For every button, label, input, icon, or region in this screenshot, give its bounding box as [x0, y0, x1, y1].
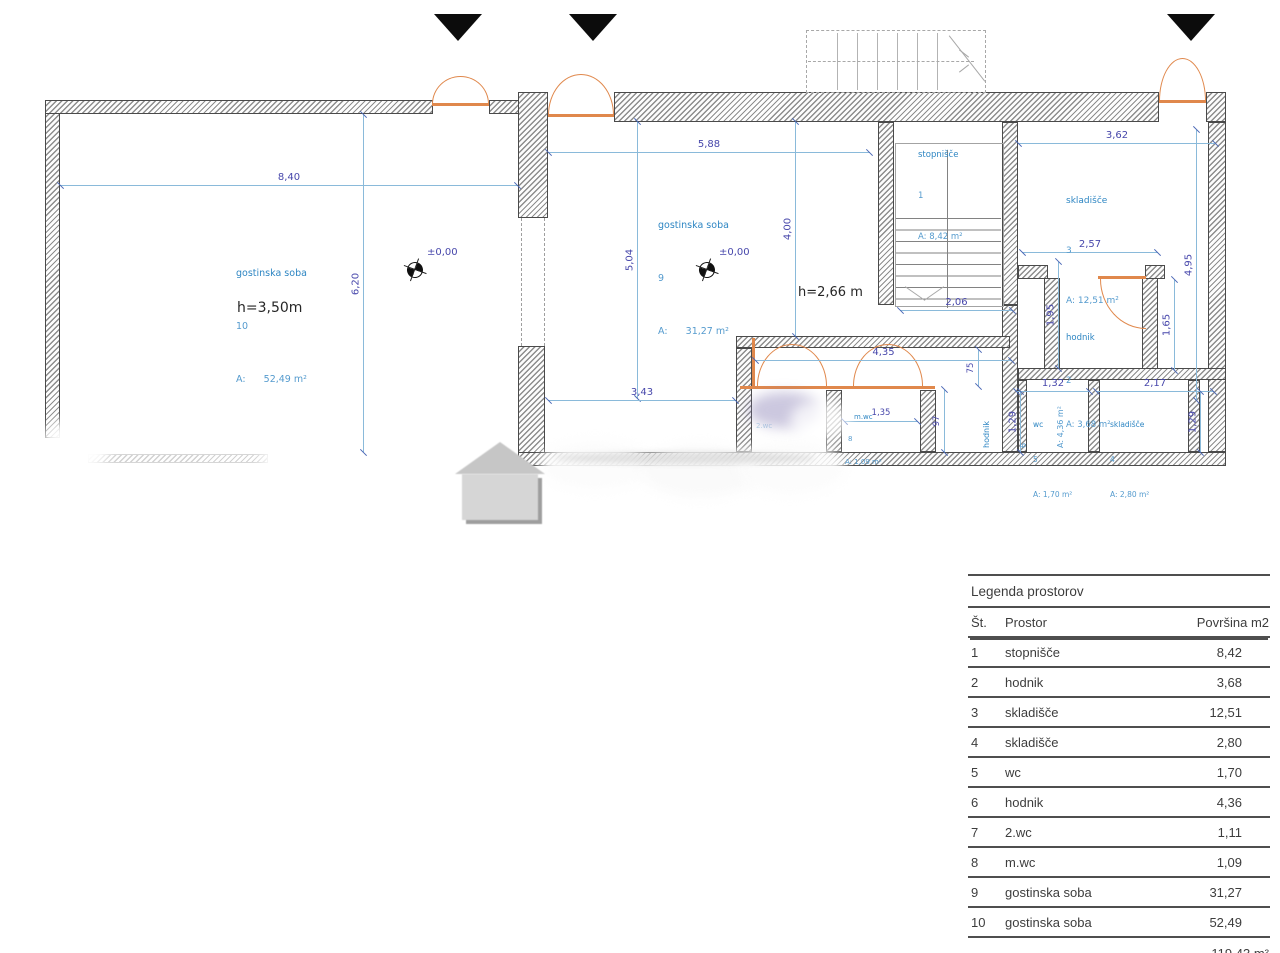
dimension-97: 97: [944, 390, 945, 452]
wall-segment: [736, 348, 752, 452]
wall-segment: [45, 100, 433, 114]
wall-segment: [1002, 122, 1018, 305]
wall-opening-dashed: [521, 218, 545, 346]
door-leaf: [752, 338, 755, 388]
door-swing-arc: [432, 76, 489, 104]
legend-header-row: Št. Prostor Površina m2: [968, 608, 1270, 638]
dimension-4-00: 4,00: [795, 122, 796, 336]
wall-segment: [1206, 92, 1226, 122]
exterior-stair-axis: [808, 61, 974, 62]
dimension-1-29: 1,29: [1200, 392, 1201, 452]
section-marker-triangle: [434, 14, 482, 41]
legend-row: 5 wc 1,70: [968, 758, 1270, 788]
dimension-4-35: 4,35: [755, 360, 1012, 361]
door-swing-arc: [757, 344, 827, 386]
door-swing-arc: [548, 74, 614, 115]
legend-table: Legenda prostorov Št. Prostor Površina m…: [968, 574, 1270, 953]
wall-segment-faded: [88, 454, 268, 463]
legend-row: 7 2.wc 1,11: [968, 818, 1270, 848]
smudge: [40, 418, 110, 473]
dimension-2-17: 2,17: [1096, 391, 1214, 392]
smudge: [790, 400, 850, 440]
section-marker-triangle: [569, 14, 617, 41]
legend-total-row: 119,43 m²: [968, 938, 1270, 953]
floor-plan-sheet: 8,40 6,20 5,88 5,04 4,00 3,43 4,35 2,06 …: [0, 0, 1280, 953]
legend-row: 10 gostinska soba 52,49: [968, 908, 1270, 938]
wall-segment: [489, 100, 520, 114]
wall-segment: [1018, 265, 1048, 279]
wall-segment: [1208, 122, 1226, 452]
legend-row: 8 m.wc 1,09: [968, 848, 1270, 878]
level-label: ±0,00: [719, 247, 750, 258]
dimension-5-04: 5,04: [637, 122, 638, 398]
legend-row: 2 hodnik 3,68: [968, 668, 1270, 698]
legend-row: 1 stopnišče 8,42: [968, 638, 1270, 668]
smudge: [260, 440, 350, 480]
room-label-gostinska-soba-9: gostinska soba 9 A: 31,27 m²: [658, 182, 729, 375]
door-swing-arc: [1159, 58, 1206, 101]
dimension-8-40: 8,40: [60, 185, 518, 186]
house-icon: [462, 474, 538, 520]
dimension-5-88: 5,88: [548, 152, 870, 153]
smudge: [555, 452, 815, 464]
wall-segment: [45, 100, 60, 438]
door-sill: [740, 386, 935, 389]
dimension-2-06: 2,06: [900, 310, 1013, 311]
room-label-gostinska-soba-10: gostinska soba 10 A: 52,49 m²: [236, 230, 307, 423]
height-note-2-66: h=2,66 m: [798, 285, 863, 300]
dimension-1-95: 1,95: [1058, 262, 1059, 368]
legend-col-room: Prostor: [1005, 615, 1165, 630]
room-area-mwc-8: A: 1,09 m²: [845, 430, 882, 495]
dimension-6-20: 6,20: [363, 115, 364, 452]
legend-col-number: Št.: [968, 615, 1005, 630]
dimension-3-43: 3,43: [548, 400, 736, 401]
legend-row: 6 hodnik 4,36: [968, 788, 1270, 818]
wall-segment: [518, 92, 548, 218]
smudge: [735, 440, 845, 495]
wall-segment: [878, 122, 894, 305]
legend-row: 3 skladišče 12,51: [968, 698, 1270, 728]
dimension-75: 75: [978, 350, 979, 386]
dimension-4-95: 4,95: [1196, 130, 1197, 400]
smudge: [540, 440, 650, 490]
wall-segment: [614, 92, 1159, 122]
legend-row: 9 gostinska soba 31,27: [968, 878, 1270, 908]
wall-segment: [1145, 265, 1165, 279]
room-label-stopnisce-1: stopnišče 1 A: 8,42 m²: [918, 122, 963, 272]
legend-total-value: 119,43 m²: [1211, 946, 1269, 953]
level-point-icon: [405, 260, 426, 281]
section-marker-triangle: [1167, 14, 1215, 41]
room-label-skladisce-4: skladišče 4 A: 2,80 m²: [1110, 396, 1149, 524]
legend-row: 4 skladišče 2,80: [968, 728, 1270, 758]
legend-col-area: Površina m2: [1165, 615, 1270, 630]
house-icon: [455, 442, 545, 474]
height-note-3-50: h=3,50m: [237, 300, 302, 316]
room-label-hodnik-6: hodnik 6 A: 4,36 m²: [956, 406, 1092, 448]
dimension-1-65: 1,65: [1174, 280, 1175, 370]
dimension-3-62: 3,62: [1018, 143, 1216, 144]
legend-title: Legenda prostorov: [968, 576, 1270, 608]
level-label: ±0,00: [427, 247, 458, 258]
